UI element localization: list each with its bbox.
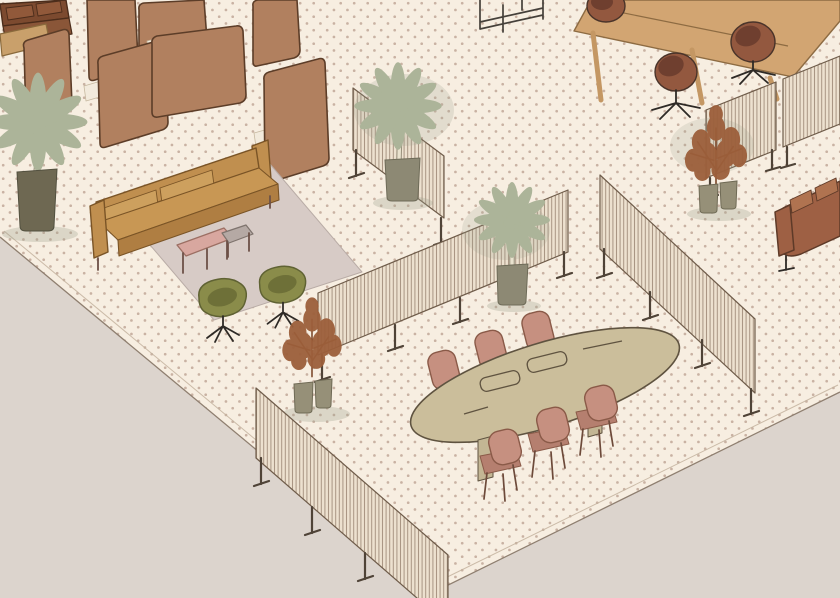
plant-pot — [385, 158, 420, 201]
plant-pot — [497, 264, 528, 305]
booth-panel-front-3 — [152, 26, 246, 117]
plant-pot — [315, 379, 332, 408]
plant-pot — [17, 169, 57, 231]
illustration-canvas — [0, 0, 840, 598]
plant-pot — [720, 181, 737, 209]
plant-pot — [699, 184, 718, 213]
booth-panel-back-3 — [253, 0, 300, 66]
plant-pot — [294, 382, 313, 413]
plant-floor-shadow — [687, 207, 751, 221]
booth-panel-front-4 — [264, 59, 329, 183]
